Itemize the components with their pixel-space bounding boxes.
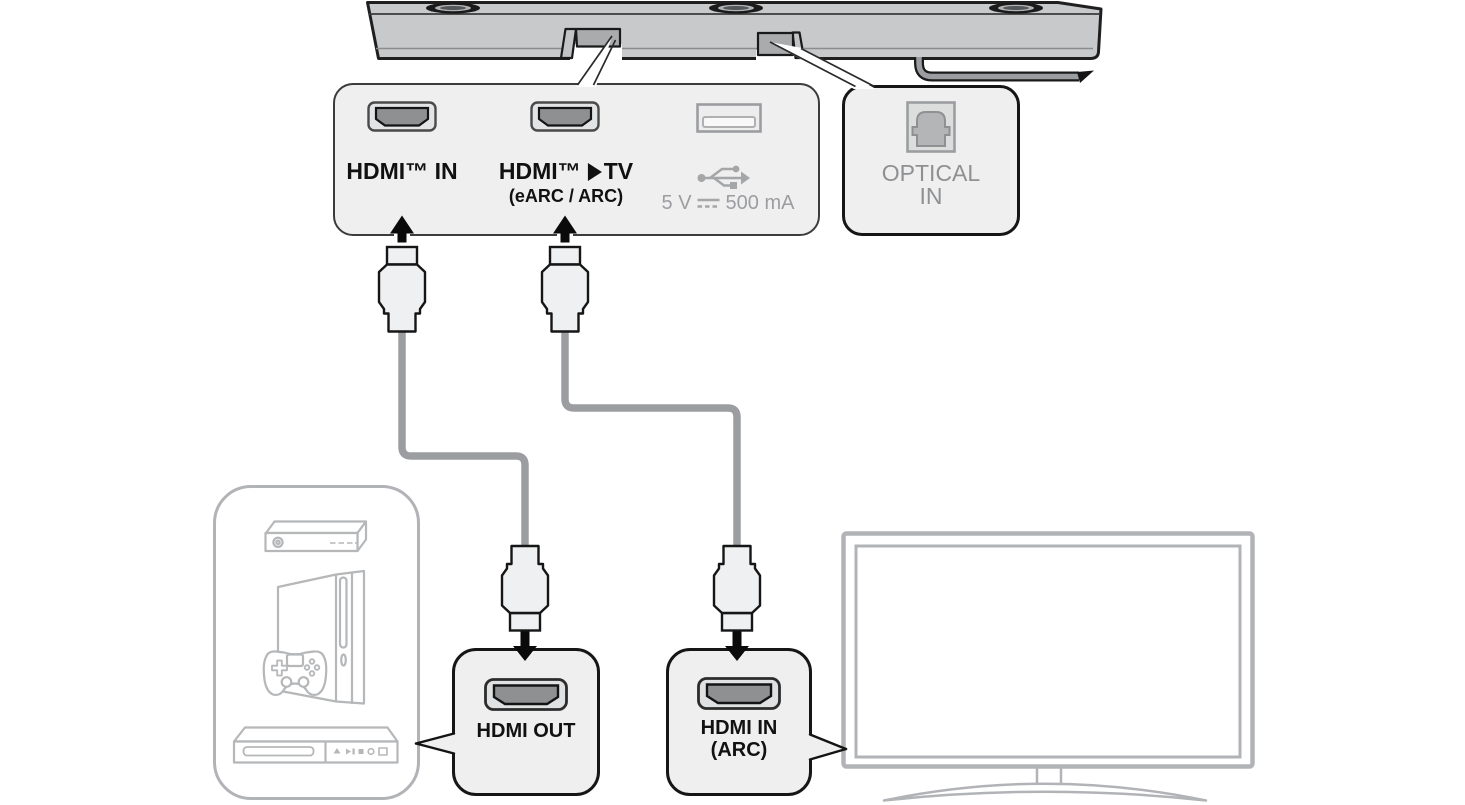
hdmi-port-icon bbox=[530, 101, 600, 137]
soundbar-connection-diagram: HDMI™ IN HDMI™TV (eARC / ARC) 5 V bbox=[0, 0, 1465, 805]
hdmi-port-icon bbox=[697, 677, 781, 715]
mounting-hole-icon bbox=[709, 3, 763, 14]
connection-arrows bbox=[390, 216, 749, 662]
usb-power-rating: 5 V 500 mA bbox=[662, 192, 795, 215]
hdmi-out-panel: HDMI OUT bbox=[452, 648, 600, 796]
hdmi-cable bbox=[402, 332, 525, 546]
hdmi-in-arc-line1: HDMI IN bbox=[701, 717, 778, 739]
main-ports-panel: HDMI™ IN HDMI™TV (eARC / ARC) 5 V bbox=[333, 83, 820, 236]
optical-label-line1: OPTICAL bbox=[845, 162, 1017, 185]
hdmi-in-arc-panel: HDMI IN (ARC) bbox=[666, 648, 812, 796]
optical-port-icon bbox=[906, 101, 956, 158]
hdmi-in-port-label: HDMI™ IN bbox=[346, 158, 457, 185]
hdmi-port-icon bbox=[367, 101, 437, 137]
mounting-hole-icon bbox=[426, 3, 480, 14]
right-triangle-icon bbox=[588, 163, 602, 181]
hdmi-out-label: HDMI OUT bbox=[477, 720, 576, 742]
hdmi-cable bbox=[565, 332, 737, 546]
port-recess bbox=[756, 33, 804, 62]
hdmi-plug-icon bbox=[714, 546, 760, 631]
hdmi-plug-icon bbox=[542, 247, 588, 332]
power-cord bbox=[919, 57, 1094, 83]
usb-rating-voltage: 5 V bbox=[662, 192, 692, 215]
callout-pointer bbox=[808, 734, 846, 761]
tv-icon bbox=[844, 534, 1253, 801]
optical-in-panel: OPTICAL IN bbox=[842, 85, 1020, 236]
usb-rating-current: 500 mA bbox=[726, 192, 795, 215]
hdmi-tv-port-label: HDMI™TV (eARC / ARC) bbox=[499, 158, 633, 207]
soundbar-rear-icon bbox=[368, 3, 1102, 84]
usb-port-icon bbox=[696, 103, 762, 138]
hdmi-in-arc-label: HDMI IN (ARC) bbox=[701, 717, 778, 761]
hdmi-port-icon bbox=[484, 678, 568, 716]
leader-line bbox=[576, 36, 616, 87]
hdmi-in-arc-line2: (ARC) bbox=[701, 739, 778, 761]
hdmi-plug-icon bbox=[502, 546, 548, 631]
earc-arc-sublabel: (eARC / ARC) bbox=[499, 186, 633, 207]
optical-label-line2: IN bbox=[845, 185, 1017, 208]
hdmi-plug-icon bbox=[379, 247, 425, 332]
mounting-hole-icon bbox=[989, 3, 1043, 14]
dc-voltage-icon bbox=[697, 192, 721, 215]
hdmi-tv-label-suffix: TV bbox=[604, 158, 633, 185]
callout-pointer bbox=[416, 733, 456, 755]
port-recess bbox=[561, 29, 622, 61]
hdmi-tv-label-prefix: HDMI™ bbox=[499, 158, 581, 185]
optical-in-label: OPTICAL IN bbox=[845, 162, 1017, 208]
source-devices-box bbox=[213, 485, 420, 800]
leader-line bbox=[770, 42, 876, 89]
